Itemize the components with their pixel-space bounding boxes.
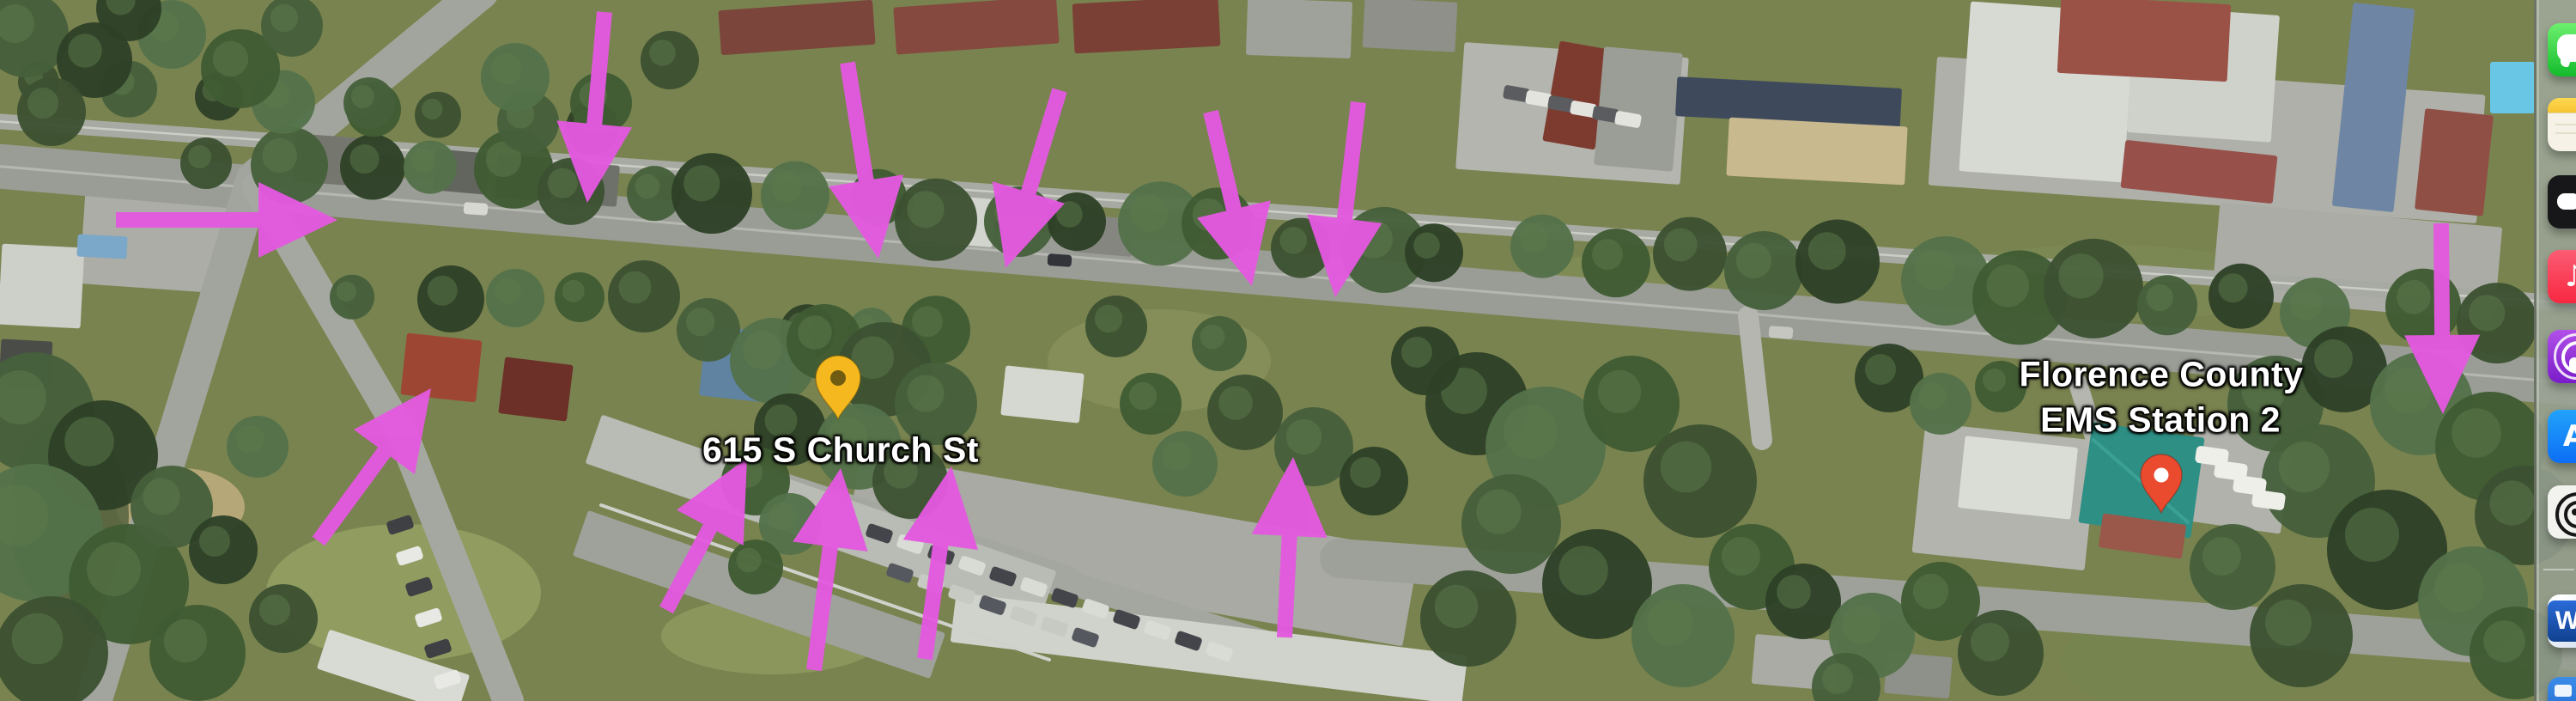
spiral-icon-center (2572, 509, 2576, 515)
address-label: 615 S Church St (702, 430, 979, 471)
address-pin-hole (830, 370, 846, 386)
dock-icon-spiral-app[interactable] (2548, 485, 2576, 539)
music-note-icon: ♪ (2548, 250, 2576, 303)
ems-pin[interactable] (2137, 453, 2185, 516)
dock-icon-apple-tv[interactable] (2548, 175, 2576, 229)
document-icon (2555, 685, 2572, 697)
ems-pin-shape (2141, 454, 2182, 513)
dock-icon-app-store[interactable]: A (2548, 410, 2576, 463)
notes-yellow-band (2548, 98, 2576, 113)
satellite-imagery[interactable] (0, 0, 2576, 701)
app-store-a-icon: A (2548, 410, 2576, 463)
podcast-person-icon (2569, 357, 2576, 373)
dock-icon-blue-app[interactable] (2548, 677, 2576, 701)
dock-icon-notes[interactable] (2548, 98, 2576, 151)
address-pin-shape (816, 356, 860, 419)
apple-logo-icon (2557, 193, 2576, 210)
ems-pin-hole (2154, 468, 2169, 483)
dock-separator (2543, 569, 2574, 570)
dock-icon-music[interactable]: ♪ (2548, 250, 2576, 303)
macos-dock: ♪ A W (2534, 0, 2576, 701)
address-pin[interactable] (812, 354, 864, 423)
notes-lines (2555, 124, 2576, 125)
speech-bubble-tail (2558, 58, 2572, 67)
dock-icon-podcasts[interactable] (2548, 330, 2576, 383)
dock-icon-messages[interactable] (2548, 23, 2576, 76)
ems-label-line1: Florence County (2020, 355, 2304, 395)
map-viewport[interactable]: 615 S Church St Florence County EMS Stat… (0, 0, 2576, 701)
dock-icon-word[interactable]: W (2548, 594, 2576, 648)
word-w-icon: W (2548, 600, 2576, 642)
ems-label-line2: EMS Station 2 (2040, 400, 2281, 441)
